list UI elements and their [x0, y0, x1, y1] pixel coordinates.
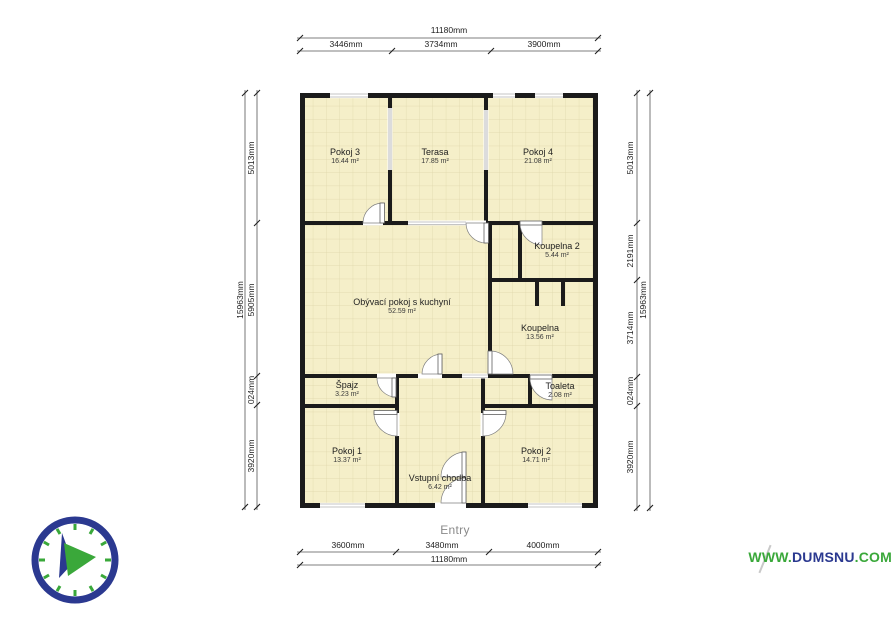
watermark-tld: .COM [855, 549, 892, 565]
dim-right-seg-3: 3714mm [625, 311, 635, 344]
room-label-vstupni-chodba: Vstupní chodba6.42 m² [409, 473, 472, 493]
dim-bottom-seg-1: 3600mm [331, 540, 364, 550]
dim-top-total: 11180mm [431, 25, 468, 35]
dim-right-total: 15963mm [638, 281, 648, 319]
window [484, 110, 489, 170]
room-label-pokoj-2: Pokoj 214.71 m² [521, 446, 551, 466]
window [493, 93, 515, 98]
window [320, 503, 365, 508]
room-label-koupelna: Koupelna13.56 m² [521, 323, 559, 343]
dim-left-total: 15963mm [235, 281, 245, 319]
room-label-pokoj-3: Pokoj 316.44 m² [330, 147, 360, 167]
window [388, 108, 393, 170]
floor-plan: Pokoj 316.44 m² Terasa17.85 m² Pokoj 421… [300, 93, 598, 508]
room-label-pokoj-4: Pokoj 421.08 m² [523, 147, 553, 167]
dim-right-seg-2: 2191mm [625, 234, 635, 267]
dim-left-seg-2: 5905mm [246, 283, 256, 316]
window [330, 93, 368, 98]
glass-door [408, 221, 468, 226]
dim-top-seg-2: 3734mm [424, 39, 457, 49]
dim-top-seg-1: 3446mm [329, 39, 362, 49]
window [535, 93, 563, 98]
room-label-terasa: Terasa17.85 m² [421, 147, 449, 167]
dim-top-seg-3: 3900mm [527, 39, 560, 49]
dim-right-seg-4: 024mm [625, 377, 635, 405]
dim-bottom-seg-2: 3480mm [425, 540, 458, 550]
watermark-www: WWW. [748, 549, 792, 565]
dim-right-seg-1: 5013mm [625, 141, 635, 174]
passage-opening [462, 374, 488, 379]
floorplan-page: Pokoj 316.44 m² Terasa17.85 m² Pokoj 421… [0, 0, 894, 625]
dim-bottom-total: 11180mm [431, 554, 468, 564]
dim-left-seg-1: 5013mm [246, 141, 256, 174]
watermark-domain: DUMSNU [792, 549, 855, 565]
room-label-koupelna-2: Koupelna 25.44 m² [534, 241, 580, 261]
room-label-toaleta: Toaleta2.08 m² [545, 381, 574, 401]
room-label-pokoj-1: Pokoj 113.37 m² [332, 446, 362, 466]
dim-right-seg-5: 3920mm [625, 440, 635, 473]
entry-label: Entry [440, 523, 470, 537]
compass-logo [28, 513, 122, 607]
dim-bottom-seg-3: 4000mm [526, 540, 559, 550]
room-label-spajz: Špajz3.23 m² [335, 380, 359, 400]
window [528, 503, 582, 508]
dim-left-seg-3: 024mm [246, 376, 256, 404]
room-label-obyvaci-pokoj: Obývací pokoj s kuchyní52.59 m² [353, 297, 451, 317]
watermark: WWW.DUMSNU.COM [748, 549, 892, 565]
dim-left-seg-4: 3920mm [246, 439, 256, 472]
